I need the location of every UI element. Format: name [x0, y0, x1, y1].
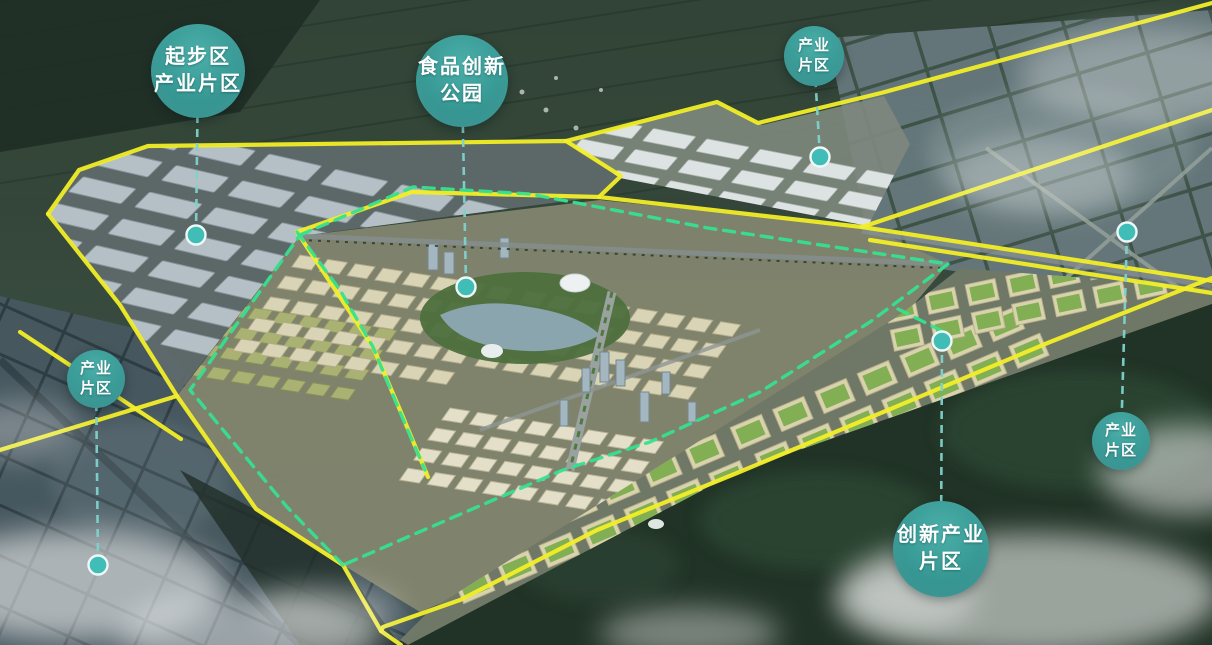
- zone-label-text: 片区: [798, 56, 830, 76]
- zone-label-startup-industrial[interactable]: 起步区产业片区: [151, 24, 245, 118]
- zone-label-text: 片区: [1105, 441, 1137, 461]
- zone-label-food-innovation-park[interactable]: 食品创新公园: [416, 35, 508, 127]
- zone-label-text: 产业: [80, 359, 112, 379]
- zone-label-industrial-east[interactable]: 产业片区: [1092, 412, 1150, 470]
- zone-labels-layer: 起步区产业片区食品创新公园产业片区产业片区产业片区创新产业片区: [0, 0, 1212, 645]
- zone-label-text: 产业片区: [154, 71, 242, 98]
- masterplan-rendering: 起步区产业片区食品创新公园产业片区产业片区产业片区创新产业片区: [0, 0, 1212, 645]
- zone-label-text: 产业: [798, 36, 830, 56]
- zone-label-text: 片区: [919, 549, 963, 576]
- zone-label-text: 片区: [80, 379, 112, 399]
- zone-label-text: 产业: [1105, 421, 1137, 441]
- zone-label-industrial-north[interactable]: 产业片区: [784, 26, 844, 86]
- zone-label-text: 起步区: [165, 44, 231, 71]
- zone-label-industrial-west[interactable]: 产业片区: [67, 350, 125, 408]
- zone-label-innovation-industrial[interactable]: 创新产业片区: [893, 501, 989, 597]
- zone-label-text: 创新产业: [897, 522, 985, 549]
- zone-label-text: 公园: [440, 81, 484, 108]
- zone-label-text: 食品创新: [418, 54, 506, 81]
